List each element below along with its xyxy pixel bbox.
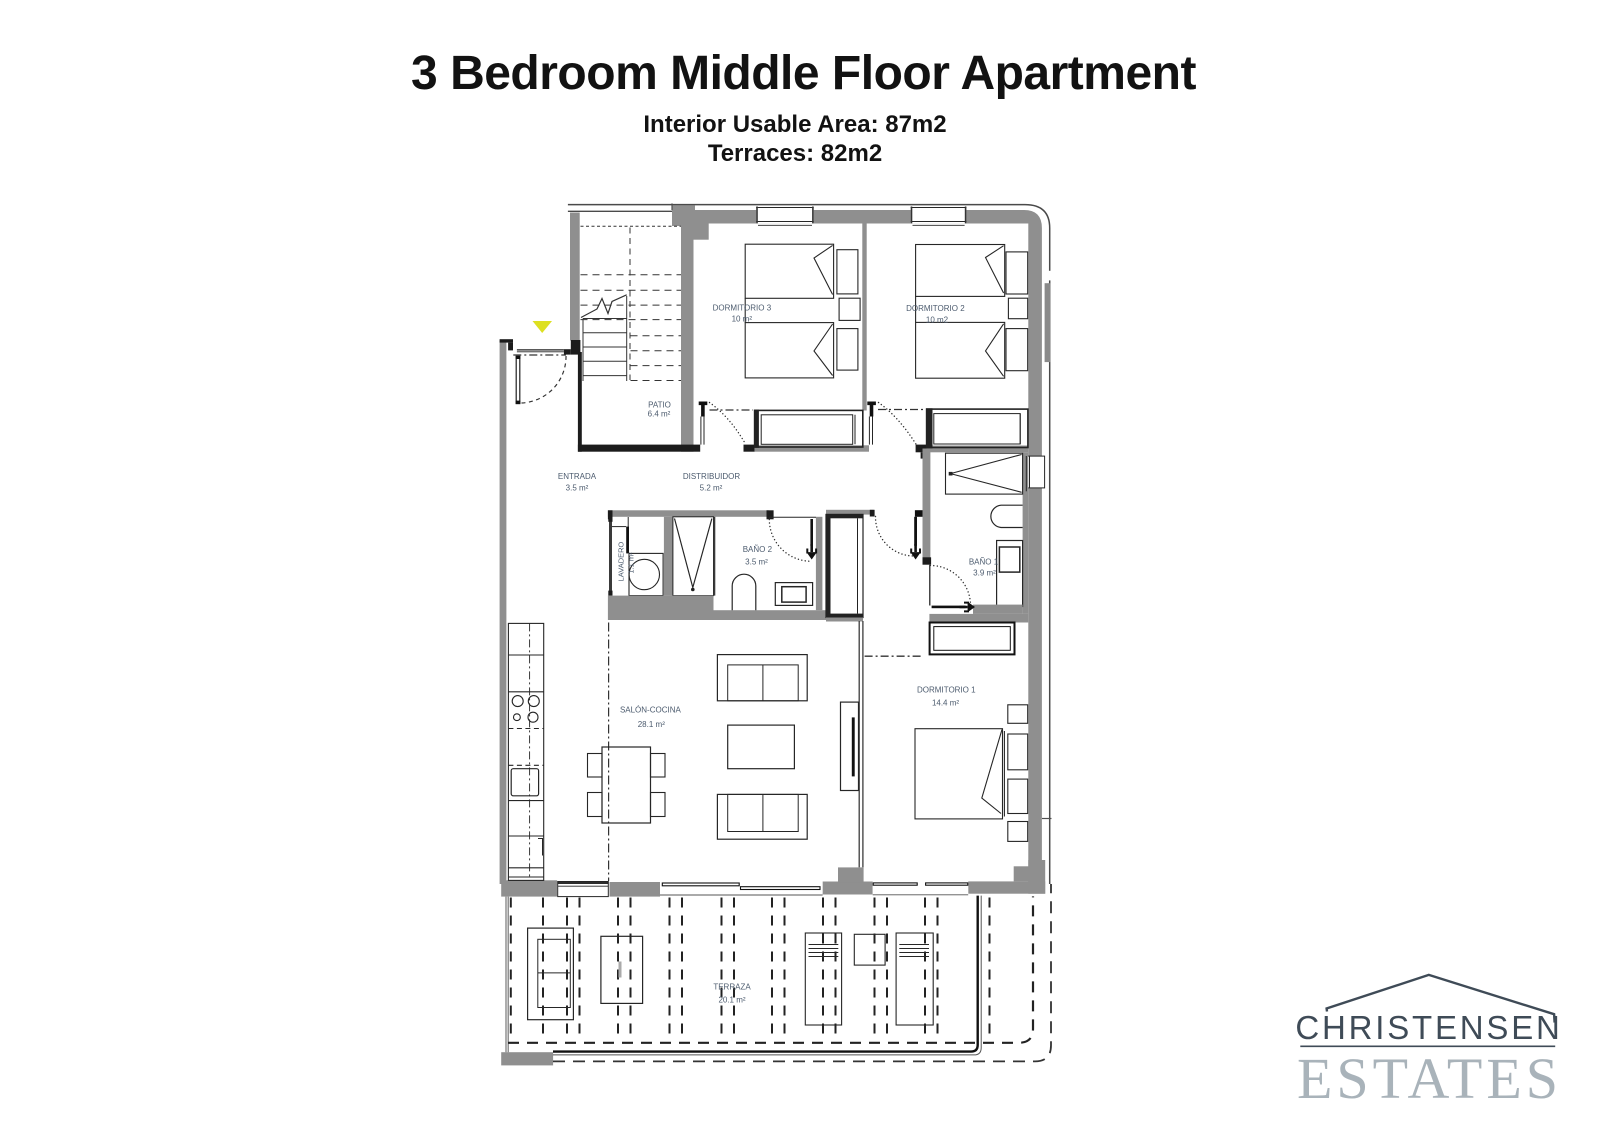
svg-text:BAÑO 2: BAÑO 2: [743, 545, 773, 554]
svg-text:SALÓN-COCINA: SALÓN-COCINA: [620, 706, 682, 715]
svg-text:LAVADERO: LAVADERO: [617, 541, 626, 581]
svg-text:1.1 m²: 1.1 m²: [627, 552, 636, 574]
svg-text:DORMITORIO 2: DORMITORIO 2: [906, 304, 965, 313]
svg-text:3.9 m²: 3.9 m²: [973, 568, 996, 577]
svg-text:ESTATES: ESTATES: [1297, 1046, 1562, 1111]
svg-text:DORMITORIO 1: DORMITORIO 1: [917, 686, 976, 695]
svg-text:5.2 m²: 5.2 m²: [700, 484, 723, 493]
svg-text:10 m2: 10 m2: [926, 315, 949, 324]
svg-text:3.5 m²: 3.5 m²: [745, 557, 768, 566]
svg-text:20.1 m²: 20.1 m²: [718, 996, 745, 1005]
svg-text:DISTRIBUIDOR: DISTRIBUIDOR: [683, 472, 741, 481]
svg-text:6.4 m²: 6.4 m²: [648, 410, 671, 419]
svg-text:CHRISTENSEN: CHRISTENSEN: [1295, 1009, 1562, 1046]
svg-text:BAÑO 1: BAÑO 1: [969, 558, 999, 567]
svg-text:3.5 m²: 3.5 m²: [566, 484, 589, 493]
svg-text:PATIO: PATIO: [648, 401, 671, 410]
svg-text:TERRAZA: TERRAZA: [713, 983, 751, 992]
svg-text:28.1 m²: 28.1 m²: [638, 720, 665, 729]
svg-text:10 m²: 10 m²: [732, 315, 753, 324]
svg-text:DORMITORIO 3: DORMITORIO 3: [713, 304, 772, 313]
svg-text:14.4 m²: 14.4 m²: [932, 699, 959, 708]
svg-text:ENTRADA: ENTRADA: [558, 472, 597, 481]
